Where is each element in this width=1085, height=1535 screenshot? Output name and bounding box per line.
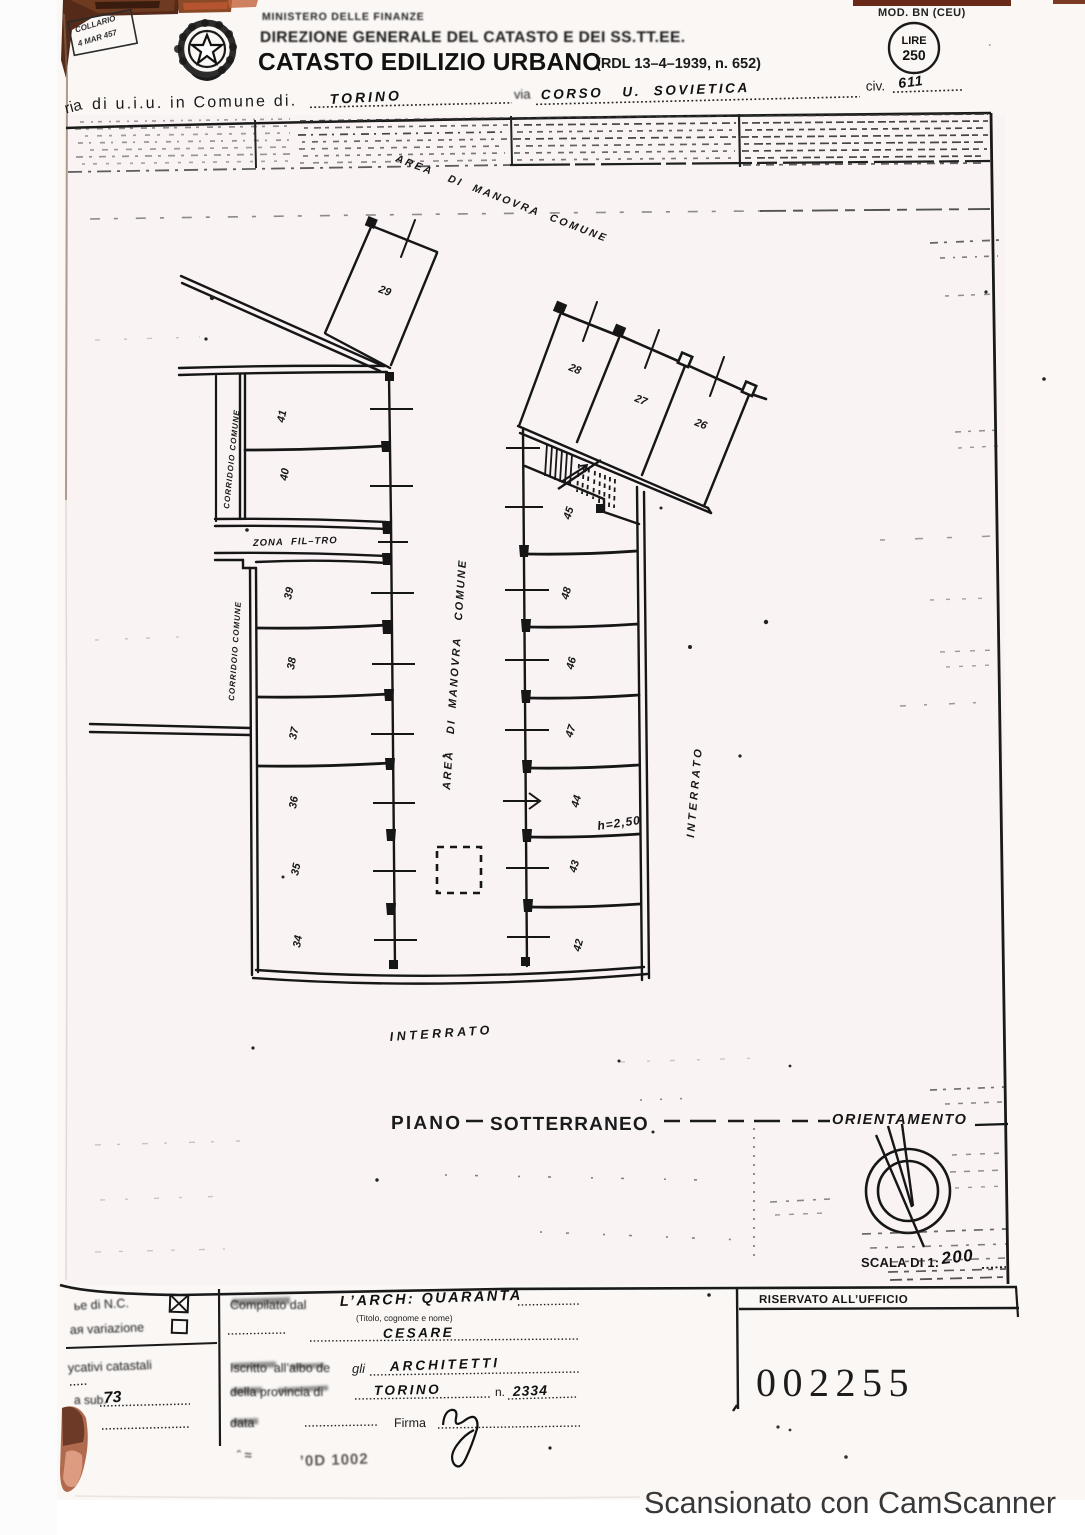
svg-text:ая variazione: ая variazione — [70, 1320, 145, 1337]
svg-text:SOTTERRANEO: SOTTERRANEO — [490, 1114, 649, 1135]
svg-text:ˆ ≈: ˆ ≈ — [236, 1447, 252, 1463]
svg-text:PIANO: PIANO — [391, 1113, 462, 1134]
svg-text:gli: gli — [352, 1361, 366, 1376]
svg-text:ORIENTAMENTO: ORIENTAMENTO — [832, 1112, 967, 1128]
svg-text:MOD. BN (CEU): MOD. BN (CEU) — [878, 7, 966, 19]
svg-text:а sub.: а sub. — [74, 1393, 107, 1407]
svg-text:SCALA DI 1:: SCALA DI 1: — [861, 1255, 939, 1270]
svg-text:611: 611 — [897, 72, 924, 91]
svg-text:LIRE: LIRE — [901, 35, 926, 47]
svg-text:200: 200 — [939, 1246, 975, 1268]
svg-text:73: 73 — [103, 1389, 122, 1407]
svg-text:002255: 002255 — [756, 1360, 915, 1405]
svg-text:Firma: Firma — [394, 1416, 426, 1430]
svg-text:(Titolo, cognome e nome): (Titolo, cognome e nome) — [356, 1313, 453, 1323]
svg-text:’0D 1002: ’0D 1002 — [300, 1451, 369, 1470]
svg-text:ье di N.C.: ье di N.C. — [73, 1296, 129, 1313]
svg-text:n.: n. — [495, 1385, 505, 1399]
svg-text:MINISTERO DELLE FINANZE: MINISTERO DELLE FINANZE — [262, 11, 424, 23]
svg-text:RISERVATO ALL’UFFICIO: RISERVATO ALL’UFFICIO — [759, 1294, 908, 1306]
svg-text:DIREZIONE GENERALE DEL CATASTO: DIREZIONE GENERALE DEL CATASTO E DEI SS.… — [260, 29, 685, 46]
svg-text:TORINO: TORINO — [374, 1382, 442, 1398]
svg-text:(RDL 13–4–1939, n. 652): (RDL 13–4–1939, n. 652) — [596, 56, 761, 72]
svg-text:уcativi catastali: уcativi catastali — [68, 1358, 152, 1375]
svg-text:34: 34 — [291, 934, 305, 948]
svg-text:via: via — [514, 86, 532, 101]
svg-text:di u.i.u. in Comune di.: di u.i.u. in Comune di. — [92, 93, 298, 114]
svg-text:CESARE: CESARE — [383, 1325, 455, 1341]
svg-text:250: 250 — [902, 47, 926, 63]
svg-text:CATASTO EDILIZIO URBANO: CATASTO EDILIZIO URBANO — [258, 49, 602, 76]
svg-text:Scansionato con CamScanner: Scansionato con CamScanner — [644, 1486, 1056, 1520]
svg-text:civ.: civ. — [866, 78, 886, 93]
svg-text:·: · — [988, 39, 992, 51]
svg-text:2334: 2334 — [512, 1382, 549, 1399]
